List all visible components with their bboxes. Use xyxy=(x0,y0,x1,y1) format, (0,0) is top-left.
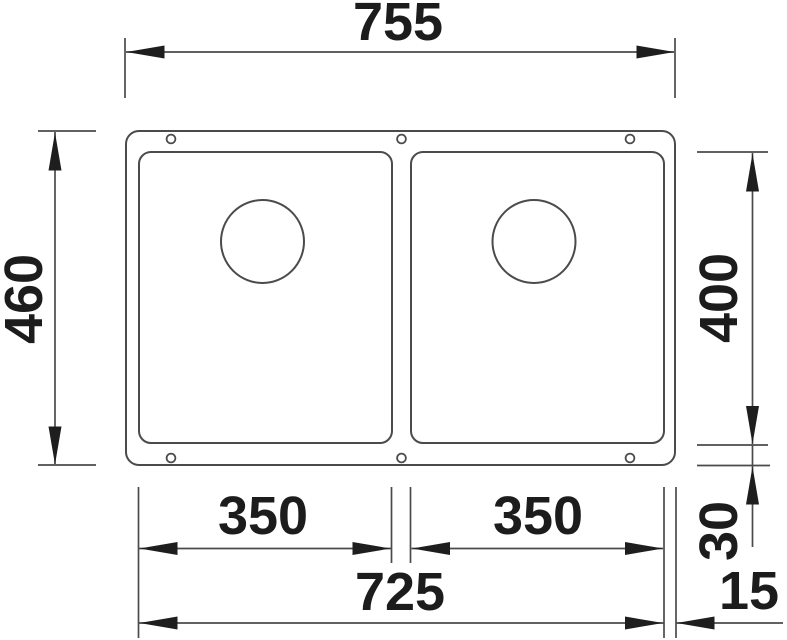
dim-label-overall-depth: 460 xyxy=(0,254,51,344)
drain-right-circle xyxy=(493,200,576,283)
mount-hole-bottom-center xyxy=(397,454,406,463)
mount-hole-top-center xyxy=(397,135,406,144)
sink-dimension-drawing: 755 460 400 350 350 725 30 15 xyxy=(0,0,787,640)
dim-label-span-width: 725 xyxy=(355,565,445,619)
sink-outer-rim xyxy=(126,131,675,465)
dimension-arrowheads xyxy=(49,46,760,630)
drawing-canvas xyxy=(0,0,787,640)
mount-hole-top-left xyxy=(167,135,176,144)
dim-label-bowl-width-right: 350 xyxy=(493,489,583,543)
drain-left-circle xyxy=(221,200,304,283)
mount-hole-top-right xyxy=(626,135,635,144)
bowl-left xyxy=(139,152,392,443)
mount-hole-bottom-left xyxy=(167,454,176,463)
dim-label-edge-offset: 15 xyxy=(719,564,779,618)
bowl-right xyxy=(411,152,664,443)
dim-label-overall-width: 755 xyxy=(353,0,443,49)
dim-label-rim-offset: 30 xyxy=(692,501,746,561)
dim-label-bowl-depth: 400 xyxy=(692,253,746,343)
dim-label-bowl-width-left: 350 xyxy=(218,489,308,543)
mount-hole-bottom-right xyxy=(626,454,635,463)
